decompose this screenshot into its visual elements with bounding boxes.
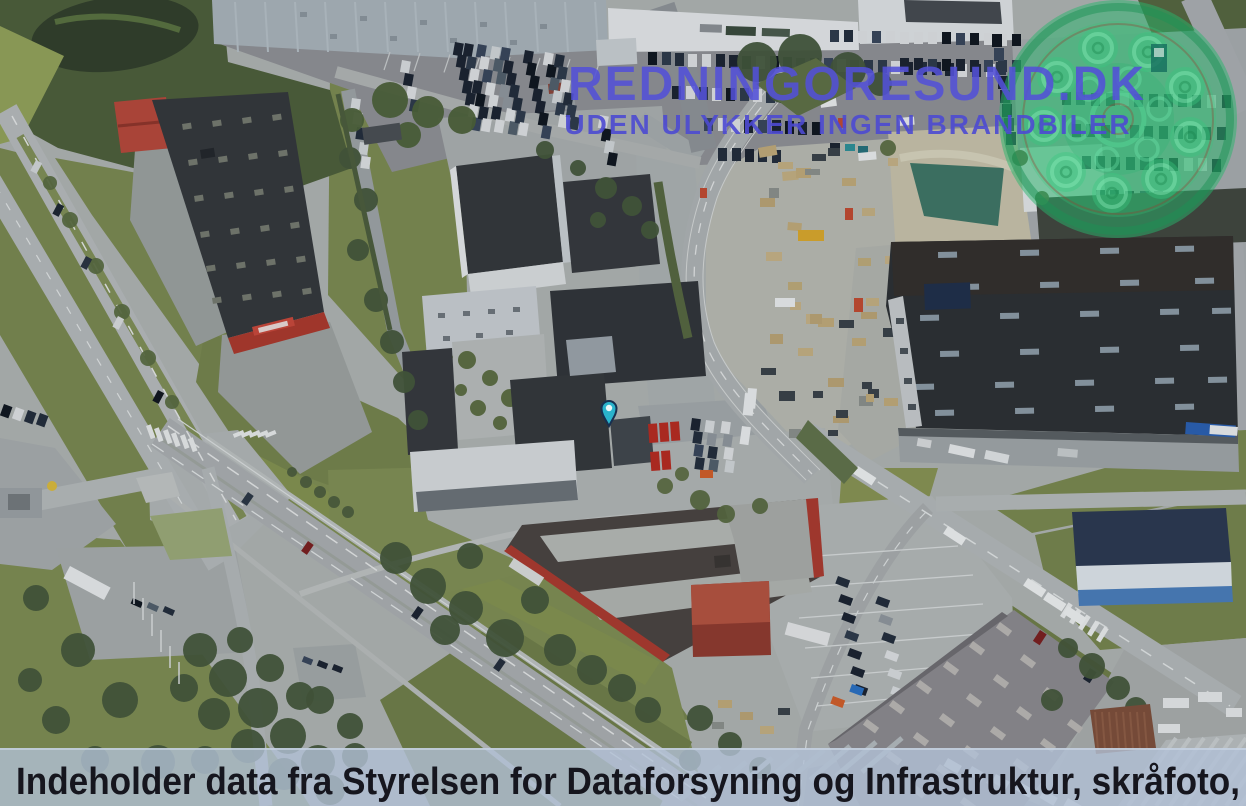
svg-text:REDNINGORESUND.DK: REDNINGORESUND.DK [568,58,1146,111]
svg-text:UDEN ULYKKER INGEN BRANDBILER: UDEN ULYKKER INGEN BRANDBILER [564,109,1131,140]
svg-text:Indeholder data fra Styrelsen: Indeholder data fra Styrelsen for Datafo… [16,761,1240,803]
